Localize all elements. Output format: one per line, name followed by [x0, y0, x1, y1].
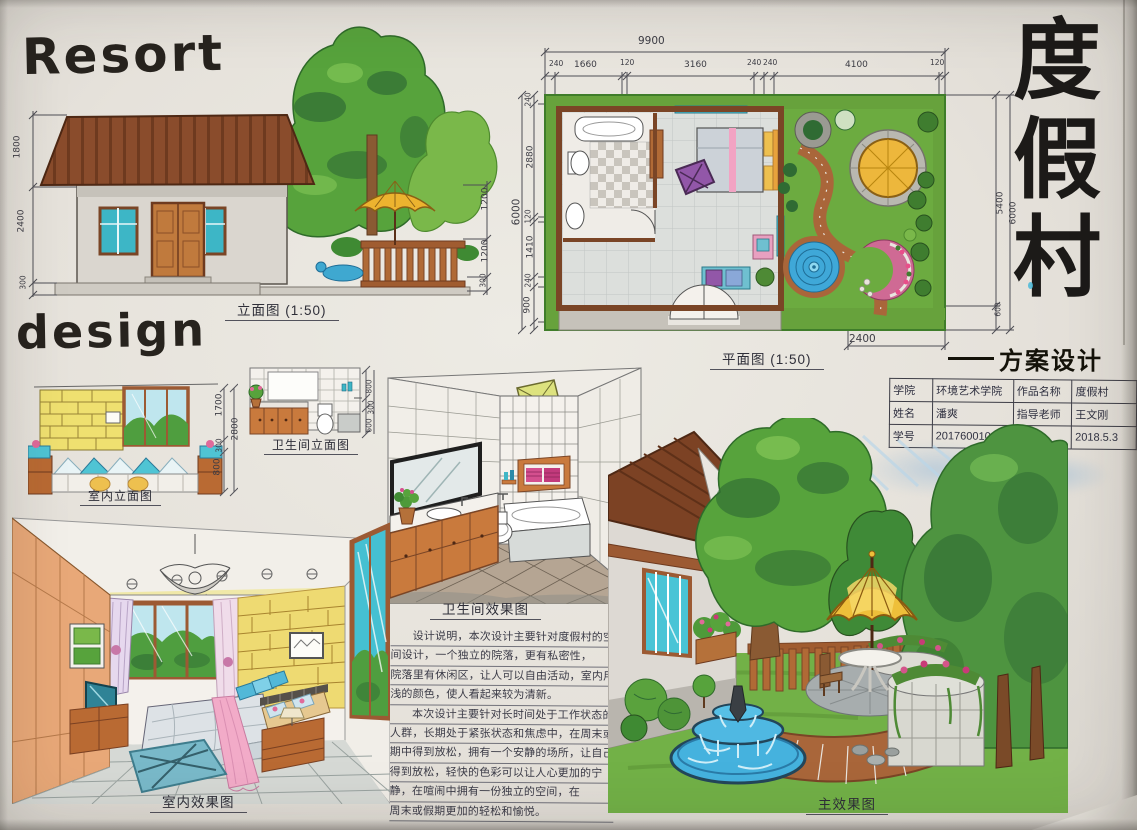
dim-label: 300: [479, 273, 488, 287]
dim-label: 800: [365, 379, 374, 393]
dim-label: 6000: [510, 199, 522, 226]
dim-label: 3160: [684, 60, 707, 70]
wall-art: [106, 412, 120, 423]
elevation-window-left: [100, 208, 137, 254]
paper-edge-right: [1121, 0, 1137, 830]
interior-render-drawing: [12, 512, 390, 804]
dim-label: 4100: [845, 60, 868, 70]
table-cell: 学院: [890, 378, 933, 401]
bathroom-render-caption: 卫生间效果图: [430, 598, 541, 620]
design-board-photo: Resort design: [0, 0, 1137, 830]
interior-elevation-caption: 室内立面图: [80, 487, 161, 506]
dim-label: 300: [19, 275, 28, 289]
table-cell: 作品名称: [1013, 380, 1072, 404]
dim-label: 1410: [525, 236, 535, 259]
design-notes-block: 设计说明，本次设计主要针对度假村的空 间设计，一个独立的院落，更有私密性， 院落…: [389, 627, 614, 822]
title-design: design: [16, 302, 208, 359]
dim-label: 240: [524, 92, 533, 106]
dim-label: 2400: [16, 210, 26, 233]
notes-line: 期中得到放松，拥有一个安静的场所，让自己: [390, 744, 614, 765]
main-render-drawing: [608, 418, 1068, 813]
house-elevation-drawing: [15, 15, 505, 305]
elevation-roof: [41, 115, 314, 185]
back-window: [123, 603, 218, 677]
elevation-fence: [361, 241, 465, 287]
dash-line: [948, 357, 994, 360]
dim-label: 2800: [230, 418, 240, 441]
dim-label: 900: [523, 296, 533, 313]
paper-edge-top: [0, 0, 1137, 8]
dim-label: 1200: [480, 240, 490, 263]
plan-bathroom: [563, 113, 655, 240]
dim-label: 2400: [849, 333, 876, 345]
nightstand-left: [28, 456, 52, 494]
elevation-trees: [276, 27, 497, 261]
notes-line: 本次设计主要针对长时间处于工作状态的: [390, 705, 614, 726]
dim-label: 1200: [480, 188, 490, 211]
dim-label: 120: [620, 58, 634, 67]
plan-pool: [786, 239, 842, 295]
floor-plan-drawing: [518, 30, 1023, 360]
ink-dot: [1028, 282, 1033, 289]
notes-line: 得到放松，轻快的色彩可以让人心更加的宁: [390, 763, 614, 784]
main-title-vertical: 度 假 村: [1000, 14, 1114, 310]
dim-label: 300: [215, 438, 224, 452]
dim-label: 120: [930, 58, 944, 67]
window: [124, 388, 188, 445]
scheme-design-label: 方案设计: [948, 341, 1103, 376]
elevation-door: [145, 203, 211, 284]
toilet: [317, 404, 333, 434]
table-cell: 环境艺术学院: [933, 379, 1014, 403]
main-title-char: 度: [1000, 14, 1114, 113]
dim-label: 300: [367, 400, 376, 414]
notes-line: 间设计，一个独立的院落，更有私密性，: [390, 647, 614, 668]
dim-label: 120: [524, 209, 533, 223]
mirror: [268, 372, 318, 400]
notes-line: 人群，长期处于紧张状态和焦虑中，在周末或假: [390, 724, 614, 745]
right-window: [352, 526, 388, 718]
dim-label: 1700: [214, 394, 224, 417]
dim-label: 1660: [574, 60, 597, 70]
notes-line: 设计说明，本次设计主要针对度假村的空: [391, 627, 615, 648]
scheme-design-text: 方案设计: [999, 341, 1103, 376]
main-render-caption: 主效果图: [806, 793, 888, 815]
main-title-char: 村: [1000, 211, 1114, 310]
paper-edge-left: [0, 0, 8, 830]
dim-label: 800: [213, 458, 223, 475]
notes-line: 静，在喧闹中拥有一份独立的空间，在: [389, 782, 613, 803]
house-window: [644, 570, 690, 656]
dim-label: 1800: [12, 136, 22, 159]
dim-label: 2880: [525, 146, 535, 169]
plan-plant: [756, 268, 774, 286]
interior-render-caption: 室内效果图: [150, 791, 247, 813]
shelf: [502, 480, 516, 484]
elevation-caption: 立面图 (1:50): [225, 299, 339, 321]
bathroom-perspective-drawing: [386, 366, 644, 604]
towels: [526, 468, 542, 482]
bathroom-elevation-caption: 卫生间立面图: [264, 436, 358, 455]
interior-elevation-drawing: [28, 378, 238, 500]
floor-plan-caption: 平面图 (1:50): [710, 348, 824, 370]
dim-label: 240: [524, 273, 533, 287]
dim-label: 240: [747, 58, 761, 67]
lamp: [280, 708, 304, 718]
elevation-fountain: [316, 262, 363, 281]
dim-label: 240: [549, 59, 563, 68]
table-row: 学院 环境艺术学院 作品名称 度假村: [890, 378, 1137, 403]
main-title-char: 假: [1000, 113, 1114, 212]
notes-line: 浅的颜色，使人看起来较为清新。: [390, 685, 614, 706]
notes-line: 院落里有休闲区，让人可以自由活动，室内用较: [390, 666, 614, 687]
dim-label: 9900: [638, 35, 665, 47]
dim-label: 600: [365, 418, 374, 432]
dim-label: 240: [763, 58, 777, 67]
elevation-base: [55, 283, 260, 295]
paper-edge-bottom: [0, 819, 1137, 830]
